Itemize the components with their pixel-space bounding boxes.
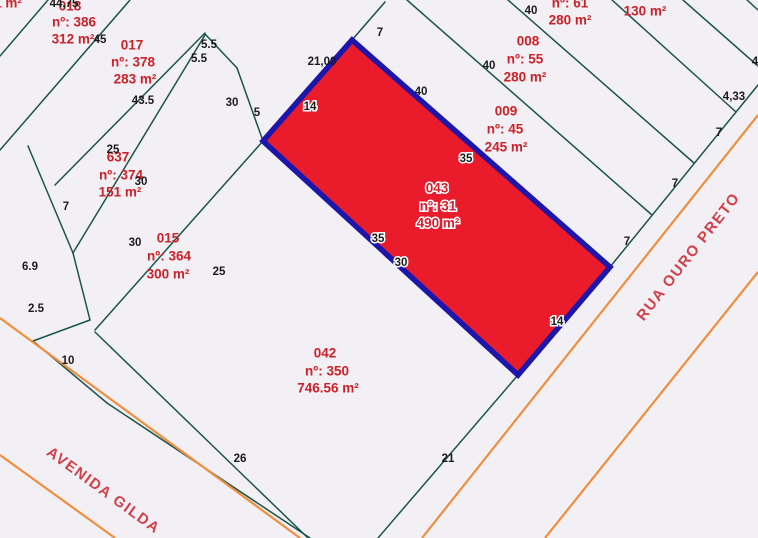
dimension-label: 21,00 <box>308 56 337 68</box>
dimension-label: 14 <box>551 316 564 328</box>
dimension-label: 21 <box>442 453 455 465</box>
cadastral-map-svg: 018nº: 386312 m²017nº: 378283 m²637nº: 3… <box>0 0 758 538</box>
dimension-label: 5.5 <box>191 53 208 65</box>
street-name-label: RUA OURO PRETO <box>633 189 743 324</box>
parcel-label-parcel-009: 009 <box>495 104 518 119</box>
dimension-label: 40 <box>415 86 428 98</box>
parcel-label-parcel-017: 283 m² <box>114 72 157 87</box>
dimension-label: 14 <box>304 101 317 113</box>
dimension-label: 35 <box>372 233 385 245</box>
parcel-label-parcel-042: nº: 350 <box>305 364 349 379</box>
dimension-label: 4,33 <box>723 91 745 103</box>
parcel-label-parcel-042: 746.56 m² <box>297 381 359 396</box>
parcel-label-parcel-008: 008 <box>517 34 540 49</box>
parcel-boundary-line <box>33 320 90 341</box>
dimension-label: 2.5 <box>28 303 45 315</box>
dimension-label: 10 <box>62 355 75 367</box>
parcel-label-parcel-018: 312 m² <box>52 32 95 47</box>
dimension-label: 5.5 <box>201 39 218 51</box>
cadastral-map: 018nº: 386312 m²017nº: 378283 m²637nº: 3… <box>0 0 758 538</box>
parcel-label-parcel-009: nº: 45 <box>487 122 524 137</box>
dimension-label: 7 <box>716 127 722 139</box>
dimension-label: 7 <box>672 178 678 190</box>
dimension-label: 25 <box>107 144 120 156</box>
dimension-label: 30 <box>226 97 239 109</box>
parcel-boundary-line <box>73 253 90 320</box>
dimension-label: 43.5 <box>132 95 155 107</box>
highlighted-parcel-label: 490 m² <box>417 216 460 231</box>
dimension-label: 7 <box>377 27 383 39</box>
dimension-label: 26 <box>234 453 247 465</box>
parcel-boundary-line <box>683 0 758 66</box>
dimension-label: 35 <box>460 153 473 165</box>
dimension-label: 30 <box>395 257 408 269</box>
dimension-label: 5 <box>254 107 261 119</box>
parcel-boundary-line <box>237 68 263 141</box>
parcel-boundary-line <box>28 146 73 253</box>
parcel-label-parcel-017: nº: 378 <box>111 55 155 70</box>
dimension-label: 7 <box>63 201 69 213</box>
dimension-label: 45 <box>94 34 107 46</box>
dimension-label: 6.9 <box>22 261 38 273</box>
dimension-label: 40 <box>483 60 496 72</box>
dimension-label: 7 <box>624 236 630 248</box>
parcel-label-parcel-042: 042 <box>314 346 337 361</box>
parcel-label-parcel-015: 015 <box>157 231 180 246</box>
dimension-label: 25 <box>213 266 226 278</box>
street-name-label: AVENIDA GILDA <box>43 444 163 538</box>
dimension-label: 40 <box>525 5 538 17</box>
parcel-label-parcel-61: nº: 61 <box>552 0 589 11</box>
parcel-boundary-line <box>747 0 758 10</box>
parcel-label-parcel-edge-partial: 1 m² <box>0 0 22 11</box>
street-edge-line <box>0 318 300 538</box>
dimension-label: 44,75 <box>50 0 79 10</box>
parcel-label-parcel-008: nº: 55 <box>507 52 544 67</box>
parcel-label-parcel-008: 280 m² <box>504 70 547 85</box>
parcel-label-parcel-61: 280 m² <box>549 13 592 28</box>
parcel-label-parcel-018: nº: 386 <box>52 15 96 30</box>
dimension-label: 30 <box>129 237 142 249</box>
highlighted-parcel-label: nº: 31 <box>420 199 457 214</box>
parcel-label-parcel-017: 017 <box>121 38 144 53</box>
parcel-label-parcel-015: 300 m² <box>147 267 190 282</box>
parcel-label-parcel-130: 130 m² <box>624 4 667 19</box>
parcel-label-parcel-009: 245 m² <box>485 140 528 155</box>
parcel-label-parcel-015: nº: 364 <box>147 249 191 264</box>
dimension-label: 4 <box>752 56 758 68</box>
dimension-label: 30 <box>135 176 148 188</box>
highlighted-parcel-label: 043 <box>426 181 449 196</box>
